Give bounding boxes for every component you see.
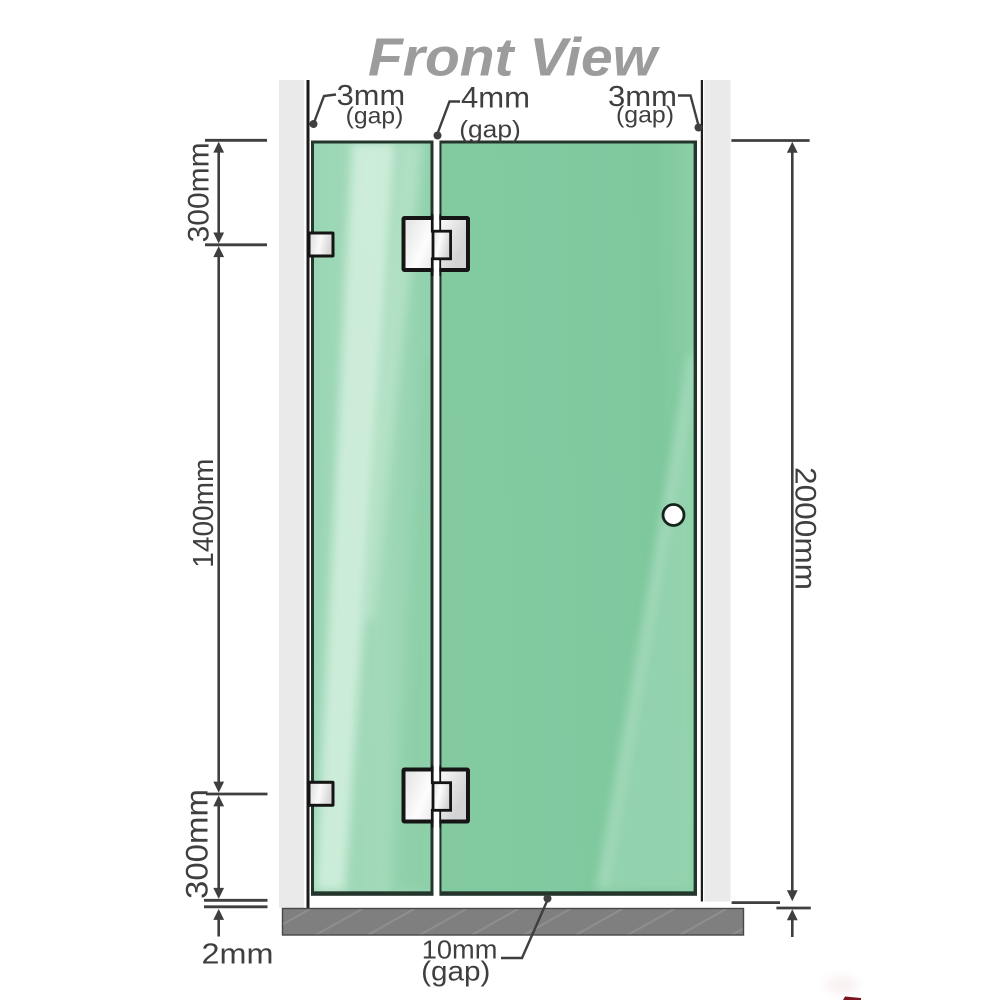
svg-text:(gap): (gap) bbox=[459, 117, 521, 144]
svg-text:(gap): (gap) bbox=[346, 103, 404, 129]
svg-text:2000mm: 2000mm bbox=[789, 467, 822, 590]
svg-text:(gap): (gap) bbox=[616, 102, 674, 128]
svg-text:300mm: 300mm bbox=[183, 142, 216, 242]
svg-text:(gap): (gap) bbox=[421, 956, 490, 987]
svg-text:1400mm: 1400mm bbox=[188, 459, 220, 568]
svg-text:4mm: 4mm bbox=[461, 82, 530, 115]
svg-text:2mm: 2mm bbox=[202, 939, 274, 971]
svg-text:Front View: Front View bbox=[368, 29, 661, 88]
svg-text:300mm: 300mm bbox=[178, 789, 214, 899]
